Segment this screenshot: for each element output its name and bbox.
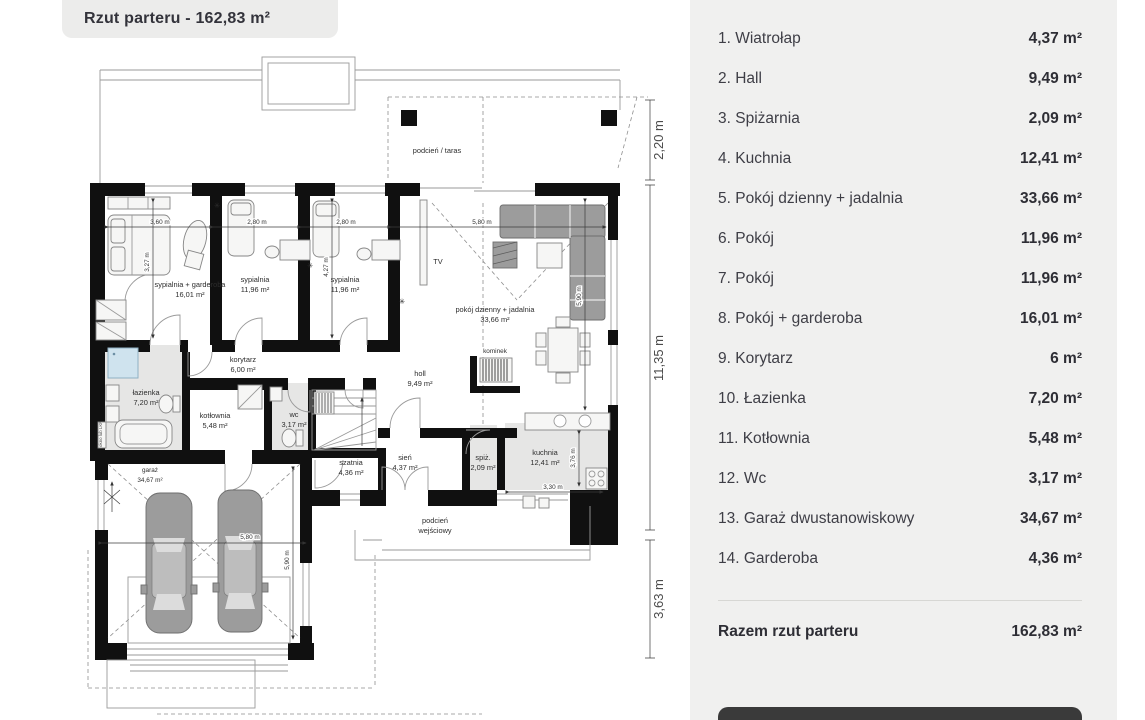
floor-plan-svg: podcień / taras xyxy=(62,38,690,720)
room-label-korytarz: korytarz xyxy=(230,355,257,364)
room-area-bed2: 11,96 m² xyxy=(241,285,270,294)
plant-icon: ✳ xyxy=(307,261,313,270)
label-kominek: kominek xyxy=(483,348,508,355)
washbasin-icon xyxy=(106,385,119,401)
room-area-kotlownia: 5,48 m² xyxy=(202,421,228,430)
room-label-living: pokój dzienny + jadalnia xyxy=(455,305,535,314)
room-area-bed3: 11,96 m² xyxy=(331,285,360,294)
room-row: 13. Garaż dwustanowiskowy34,67 m² xyxy=(718,499,1082,539)
dim-5-90-living: 5,90 m xyxy=(576,286,583,306)
room-label-bed1: sypialnia + garderoba xyxy=(155,280,227,289)
room-label-holl: holl xyxy=(414,369,426,378)
dim-11-35: 11,35 m xyxy=(651,335,666,381)
total-value: 162,83 m² xyxy=(1011,623,1082,641)
garage xyxy=(104,464,300,643)
single-bed-icon xyxy=(228,200,254,256)
room-area-korytarz: 6,00 m² xyxy=(230,365,256,374)
dim-5-80-garage: 5,80 m xyxy=(240,534,260,541)
room-label-kuchnia: kuchnia xyxy=(532,448,558,457)
pouf-icon xyxy=(493,242,517,268)
dim-5-90-garage: 5,90 m xyxy=(284,550,291,570)
room-area-spiz: 2,09 m² xyxy=(470,463,496,472)
floor-plan-container: podcień / taras xyxy=(62,38,690,720)
washbasin-icon xyxy=(270,387,282,401)
page: Rzut parteru - 162,83 m² podcień / taras xyxy=(0,0,1145,720)
room-row: 11. Kotłownia5,48 m² xyxy=(718,419,1082,459)
room-row: 14. Garderoba4,36 m² xyxy=(718,539,1082,579)
room-row: 5. Pokój dzienny + jadalnia33,66 m² xyxy=(718,179,1082,219)
label-okno: okno lub LKF xyxy=(98,421,103,447)
dim-5-80-top: 5,80 m xyxy=(472,219,492,226)
room-label-lazienka: łazienka xyxy=(132,388,160,397)
room-label-wc: wc xyxy=(288,410,298,419)
appliance-icon xyxy=(539,498,549,508)
total-row: Razem rzut parteru 162,83 m² xyxy=(718,601,1082,663)
room-row: 12. Wc3,17 m² xyxy=(718,459,1082,499)
stairs-icon xyxy=(312,390,376,450)
room-row: 3. Spiżarnia2,09 m² xyxy=(718,99,1082,139)
label-podcien-1: podcień xyxy=(422,516,448,525)
dim-3-63: 3,63 m xyxy=(651,579,666,619)
room-row: 7. Pokój11,96 m² xyxy=(718,259,1082,299)
room-label-sien: sień xyxy=(398,453,412,462)
room-area-sien: 4,37 m² xyxy=(392,463,418,472)
single-bed-icon xyxy=(313,201,339,257)
exterior-dimensions: 2,20 m 11,35 m 3,63 m xyxy=(645,100,666,658)
room-label-spiz: spiż. xyxy=(475,453,490,462)
room-row: 2. Hall9,49 m² xyxy=(718,59,1082,99)
room-summary-panel: 1. Wiatrołap4,37 m² 2. Hall9,49 m² 3. Sp… xyxy=(690,0,1117,720)
total-label: Razem rzut parteru xyxy=(718,623,858,641)
appliance-icon xyxy=(523,496,535,508)
toilet-icon xyxy=(282,429,303,447)
room-row: 6. Pokój11,96 m² xyxy=(718,219,1082,259)
page-title: Rzut parteru - 162,83 m² xyxy=(84,10,270,28)
compass-icon xyxy=(104,482,120,512)
double-bed-icon xyxy=(108,197,170,275)
sink-icon xyxy=(579,415,591,427)
dim-3-30: 3,30 m xyxy=(543,484,563,491)
room-row: 9. Korytarz6 m² xyxy=(718,339,1082,379)
desk-chair-icon xyxy=(357,240,400,260)
dining-table-icon xyxy=(536,317,590,383)
label-taras: podcień / taras xyxy=(413,146,462,155)
coffee-table-icon xyxy=(537,243,562,268)
dim-2-20: 2,20 m xyxy=(651,120,666,160)
car-icon xyxy=(213,490,268,632)
room-label-garaz: garaż xyxy=(142,467,158,474)
room-list: 1. Wiatrołap4,37 m² 2. Hall9,49 m² 3. Sp… xyxy=(690,0,1117,579)
dim-4-27: 4,27 m xyxy=(323,257,330,277)
fireplace-icon xyxy=(480,358,512,382)
cooktop-icon xyxy=(586,468,607,489)
dim-3-76: 3,76 m xyxy=(570,448,577,468)
toilet-icon xyxy=(159,395,180,413)
room-row: 8. Pokój + garderoba16,01 m² xyxy=(718,299,1082,339)
wardrobe-icon xyxy=(96,300,126,340)
bathtub-icon xyxy=(115,420,172,448)
sink-icon xyxy=(554,415,566,427)
dim-2-80-a: 2,80 m xyxy=(247,219,267,226)
room-row: 1. Wiatrołap4,37 m² xyxy=(718,19,1082,59)
room-label-szatnia: szatnia xyxy=(339,458,363,467)
room-area-lazienka: 7,20 m² xyxy=(133,398,159,407)
desk-chair-icon xyxy=(265,240,310,260)
shower-icon xyxy=(108,348,138,378)
washbasin-icon xyxy=(106,406,119,422)
plant-icon: ✳ xyxy=(399,297,405,306)
dim-2-80-b: 2,80 m xyxy=(336,219,356,226)
room-label-kotlownia: kotłownia xyxy=(200,411,232,420)
room-area-wc: 3,17 m² xyxy=(281,420,307,429)
label-tv: TV xyxy=(433,257,443,266)
room-row: 10. Łazienka7,20 m² xyxy=(718,379,1082,419)
tv-cabinet-icon xyxy=(420,200,427,285)
room-area-szatnia: 4,36 m² xyxy=(338,468,364,477)
room-label-bed3: sypialnia xyxy=(331,275,361,284)
room-area-garaz: 34,67 m² xyxy=(137,477,162,484)
cta-button[interactable] xyxy=(718,707,1082,720)
room-area-bed1: 16,01 m² xyxy=(175,290,205,299)
room-area-kuchnia: 12,41 m² xyxy=(530,458,560,467)
tab-floor-plan[interactable]: Rzut parteru - 162,83 m² xyxy=(62,0,338,38)
car-icon xyxy=(141,493,197,633)
room-row: 4. Kuchnia12,41 m² xyxy=(718,139,1082,179)
roof-outline xyxy=(100,57,620,183)
room-area-holl: 9,49 m² xyxy=(407,379,433,388)
ottoman-icon xyxy=(184,250,204,270)
boiler-icon xyxy=(238,385,262,409)
plant-icon: ✳ xyxy=(214,201,220,210)
dim-3-27: 3,27 m xyxy=(144,252,151,272)
label-podcien-2: wejściowy xyxy=(417,526,452,535)
room-area-living: 33,66 m² xyxy=(480,315,510,324)
room-label-bed2: sypialnia xyxy=(241,275,271,284)
